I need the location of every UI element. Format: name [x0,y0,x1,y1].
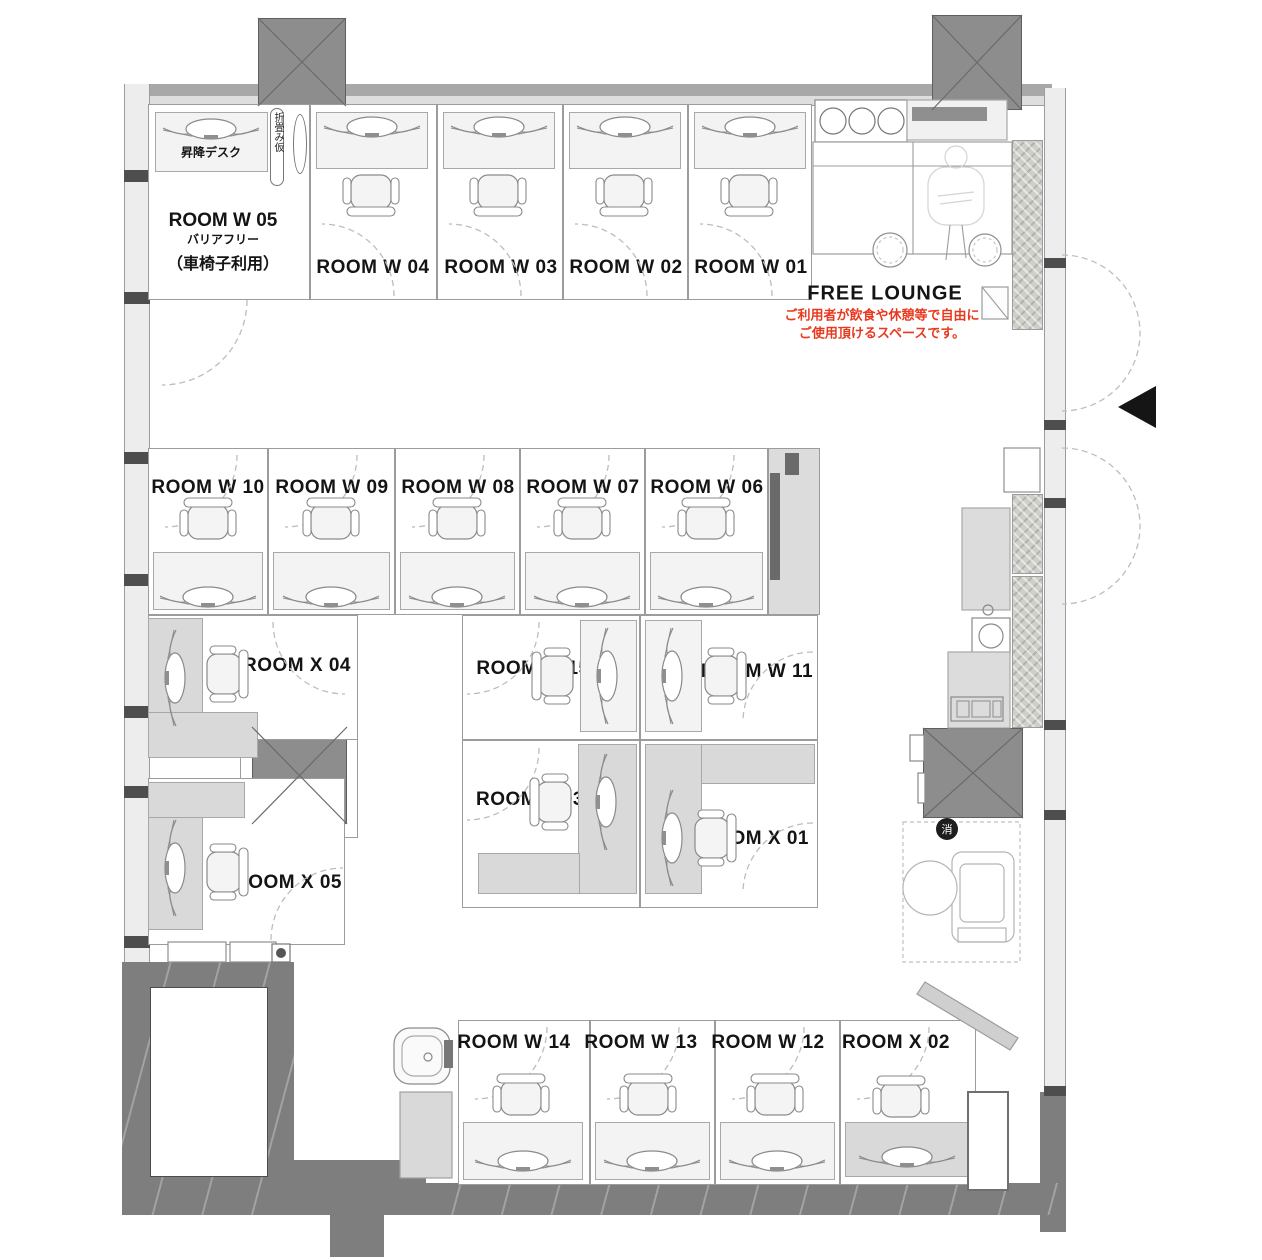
door-swing-arc [743,823,813,893]
fixture [1004,448,1040,492]
fixture-circle [878,108,904,134]
folding-item-icon [293,114,307,174]
monitor-icon [658,587,754,607]
monitor-icon [534,587,630,607]
chair-icon [695,810,736,866]
door-swing-arc [743,652,813,722]
chair-icon [532,648,573,704]
diagonal-wall [917,982,1018,1050]
door-swing-arc [467,748,539,820]
door-swing-arc [575,224,647,296]
chair-icon [678,498,734,539]
door-swing-arc [1062,448,1140,604]
free-lounge-note-1: ご利用者が飲食や休憩等で自由に [784,305,979,324]
fixture-circle [969,234,1001,266]
free-lounge-title: FREE LOUNGE [807,283,962,306]
column-x-mark [252,727,347,824]
furniture-overlay: 消 [0,0,1262,1260]
fixture-circle [276,948,286,958]
fixture [912,107,987,121]
fixture [962,508,1010,610]
door-swing-arc [1062,255,1140,411]
chair-icon [747,1074,803,1115]
chair-icon [554,498,610,539]
fixture-circle [903,861,957,915]
monitor-icon [729,1151,825,1171]
fixture-circle [873,233,907,267]
door-swing-arc [271,868,343,940]
free-lounge-note-2: ご使用頂けるスペースです。 [799,323,965,342]
fixture [785,453,799,475]
door-swing-arc [700,224,772,296]
fixture [910,735,924,761]
chair-icon [180,498,236,539]
monitor-icon [160,587,256,607]
svg-text:消: 消 [942,822,953,836]
door-swing-arc [322,224,394,296]
chair-icon [429,498,485,539]
monitor-icon [165,820,185,916]
monitor-icon [597,628,617,724]
monitor-icon [662,628,682,724]
fire-extinguisher-badge: 消 [936,818,958,840]
door-swing-arc [467,622,539,694]
fixture [770,473,780,580]
column-x-mark [258,18,346,106]
fixture [968,1092,1008,1190]
fixture [168,942,226,962]
monitor-icon [702,117,798,137]
fixture [230,942,276,962]
monitor-icon [577,117,673,137]
chair-icon [873,1076,929,1117]
fixture-circle [820,108,846,134]
monitor-icon [604,1151,700,1171]
chair-icon [620,1074,676,1115]
chair-icon [343,175,399,216]
fixture [400,1092,452,1178]
chair-icon [493,1074,549,1115]
chair-icon [303,498,359,539]
chair-icon [207,844,248,900]
monitor-icon [283,587,379,607]
column-x-mark [923,728,1023,818]
fixture-circle [849,108,875,134]
chair-icon [470,175,526,216]
folding-desk-label: 折畳み仮 [270,108,284,186]
door-swing-arc [449,224,521,296]
door-swing-arc [162,300,247,385]
monitor-icon [163,119,259,139]
fixture [444,1040,453,1068]
floor-plan: ROOM W 04ROOM W 03ROOM W 02ROOM W 01ROOM… [0,0,1262,1260]
monitor-icon [475,1151,571,1171]
monitor-icon [859,1147,955,1167]
door-swing-arc [273,622,345,694]
monitor-icon [596,754,616,850]
entrance-arrow-icon [1118,386,1156,428]
monitor-icon [409,587,505,607]
monitor-icon [451,117,547,137]
monitor-icon [324,117,420,137]
chair-icon [721,175,777,216]
fixture [918,773,925,803]
lift-desk-label: 昇降デスク [181,144,241,161]
room-w05-wheelchair: （車椅子利用） [167,250,279,274]
chair-icon [207,646,248,702]
room-w05-title: ROOM W 05 [169,210,278,232]
monitor-icon [662,790,682,886]
chair-icon [530,774,571,830]
column-x-mark [932,15,1022,110]
chair-icon [705,648,746,704]
chair-icon [596,175,652,216]
room-w05-barrier-free: バリアフリー [187,231,259,248]
monitor-icon [165,630,185,726]
